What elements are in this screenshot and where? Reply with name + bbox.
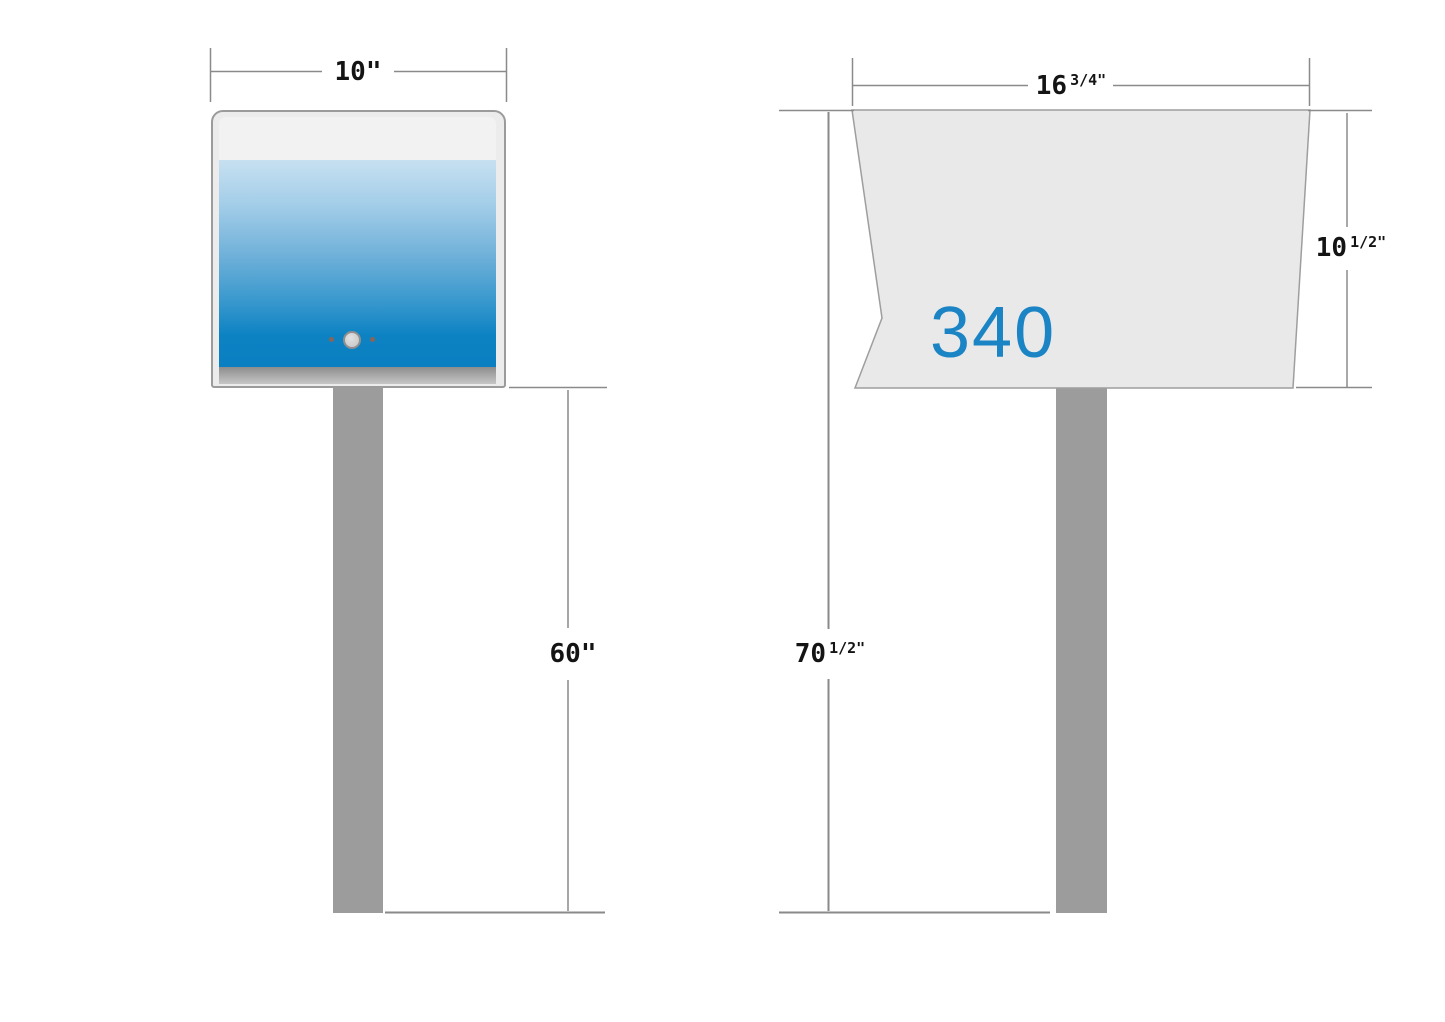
side-total-height-label: 701/2" (795, 641, 865, 667)
side-total-height-value: 70 (795, 639, 826, 669)
front-post-height-value: 60" (550, 639, 597, 669)
side-total-height-fraction: 1/2" (829, 639, 865, 657)
front-post-height-label: 60" (550, 641, 597, 667)
front-width-label: 10" (335, 59, 382, 85)
front-width-value: 10" (335, 57, 382, 87)
mailbox-dimension-diagram: 340 10" 60" 163/4" 701/2" 101/2" (0, 0, 1445, 1022)
side-view-mailbox-body (852, 110, 1310, 388)
right-screw-dot (370, 337, 375, 342)
mailbox-number: 340 (930, 297, 1056, 369)
door-bottom-band (219, 367, 496, 384)
front-view-mailbox-shell (211, 110, 506, 388)
side-width-value: 16 (1036, 71, 1067, 101)
side-width-fraction: 3/4" (1070, 71, 1106, 89)
left-screw-dot (329, 337, 334, 342)
door-knob (343, 331, 361, 349)
side-view-post (1056, 388, 1107, 913)
side-body-height-label: 101/2" (1316, 235, 1386, 261)
door-top-band (219, 117, 496, 160)
front-view-post (333, 388, 383, 913)
side-width-label: 163/4" (1036, 73, 1106, 99)
side-body-height-value: 10 (1316, 233, 1347, 263)
side-body-height-fraction: 1/2" (1350, 233, 1386, 251)
